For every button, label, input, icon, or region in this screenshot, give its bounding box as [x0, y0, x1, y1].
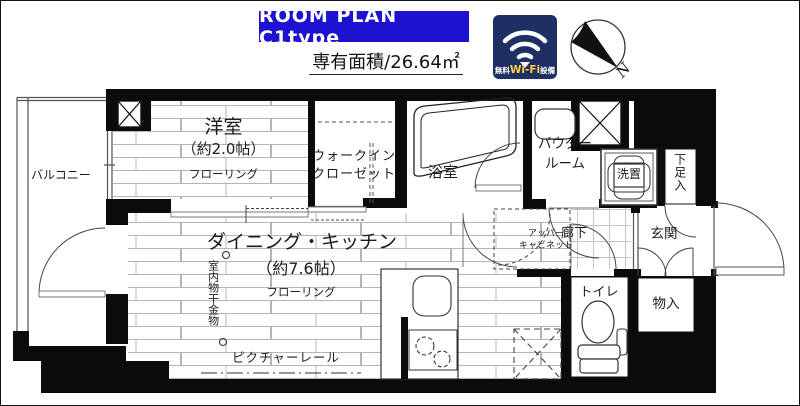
bath-label: 浴室	[428, 164, 478, 181]
area-text: 専有面積/26.64㎡	[279, 48, 493, 74]
powder-room-label-2: ルーム	[525, 157, 605, 173]
wic-label-1: ウォークイン	[301, 150, 407, 165]
balcony-rails	[17, 97, 106, 333]
vanity-sink-icon	[535, 109, 575, 139]
corridor-label: 廊下	[561, 227, 587, 242]
western-room-size: （約2.0帖）	[151, 141, 296, 158]
wifi-badge: 無料Wi-Fi設備	[493, 15, 557, 79]
room-plan-banner: ROOM PLAN C1type	[259, 11, 469, 42]
entrance-label: 玄関	[640, 227, 688, 243]
dk-floor: フローリング	[211, 286, 391, 299]
dk-label: ダイニング・キッチン	[197, 232, 407, 254]
room-plan-title: ROOM PLAN C1type	[259, 5, 469, 49]
bath-door	[475, 143, 521, 191]
balcony-label: バルコニー	[31, 169, 103, 183]
western-room-floor: フローリング	[161, 168, 286, 181]
wifi-badge-text: 無料Wi-Fi設備	[493, 64, 557, 76]
storage-label: 物入	[640, 297, 692, 313]
western-room-label: 洋室	[161, 117, 286, 139]
washer-label: 洗置	[612, 168, 646, 182]
upper-cabinet-label-2: キャビネット	[502, 241, 590, 251]
dk-size: （約7.6帖）	[211, 260, 391, 278]
laundry-hardware-label: 室内物干金物	[206, 260, 219, 340]
entrance-door	[716, 203, 784, 275]
toilet-label: トイレ	[575, 286, 623, 301]
kitchen-counter-icon	[381, 269, 458, 379]
picture-rail-label: ピクチャーレール	[226, 351, 346, 365]
floor-plan-image: N ROOM PLAN C1type 専有面積/26.64㎡ 無料Wi-Fi設備…	[0, 0, 800, 406]
shoe-cabinet-label: 下足入	[672, 153, 686, 203]
compass-icon: N	[571, 20, 635, 82]
powder-room-label-1: パウダー	[525, 137, 605, 153]
compass-n-label: N	[611, 59, 634, 82]
wic-label-2: クローゼット	[301, 168, 407, 183]
